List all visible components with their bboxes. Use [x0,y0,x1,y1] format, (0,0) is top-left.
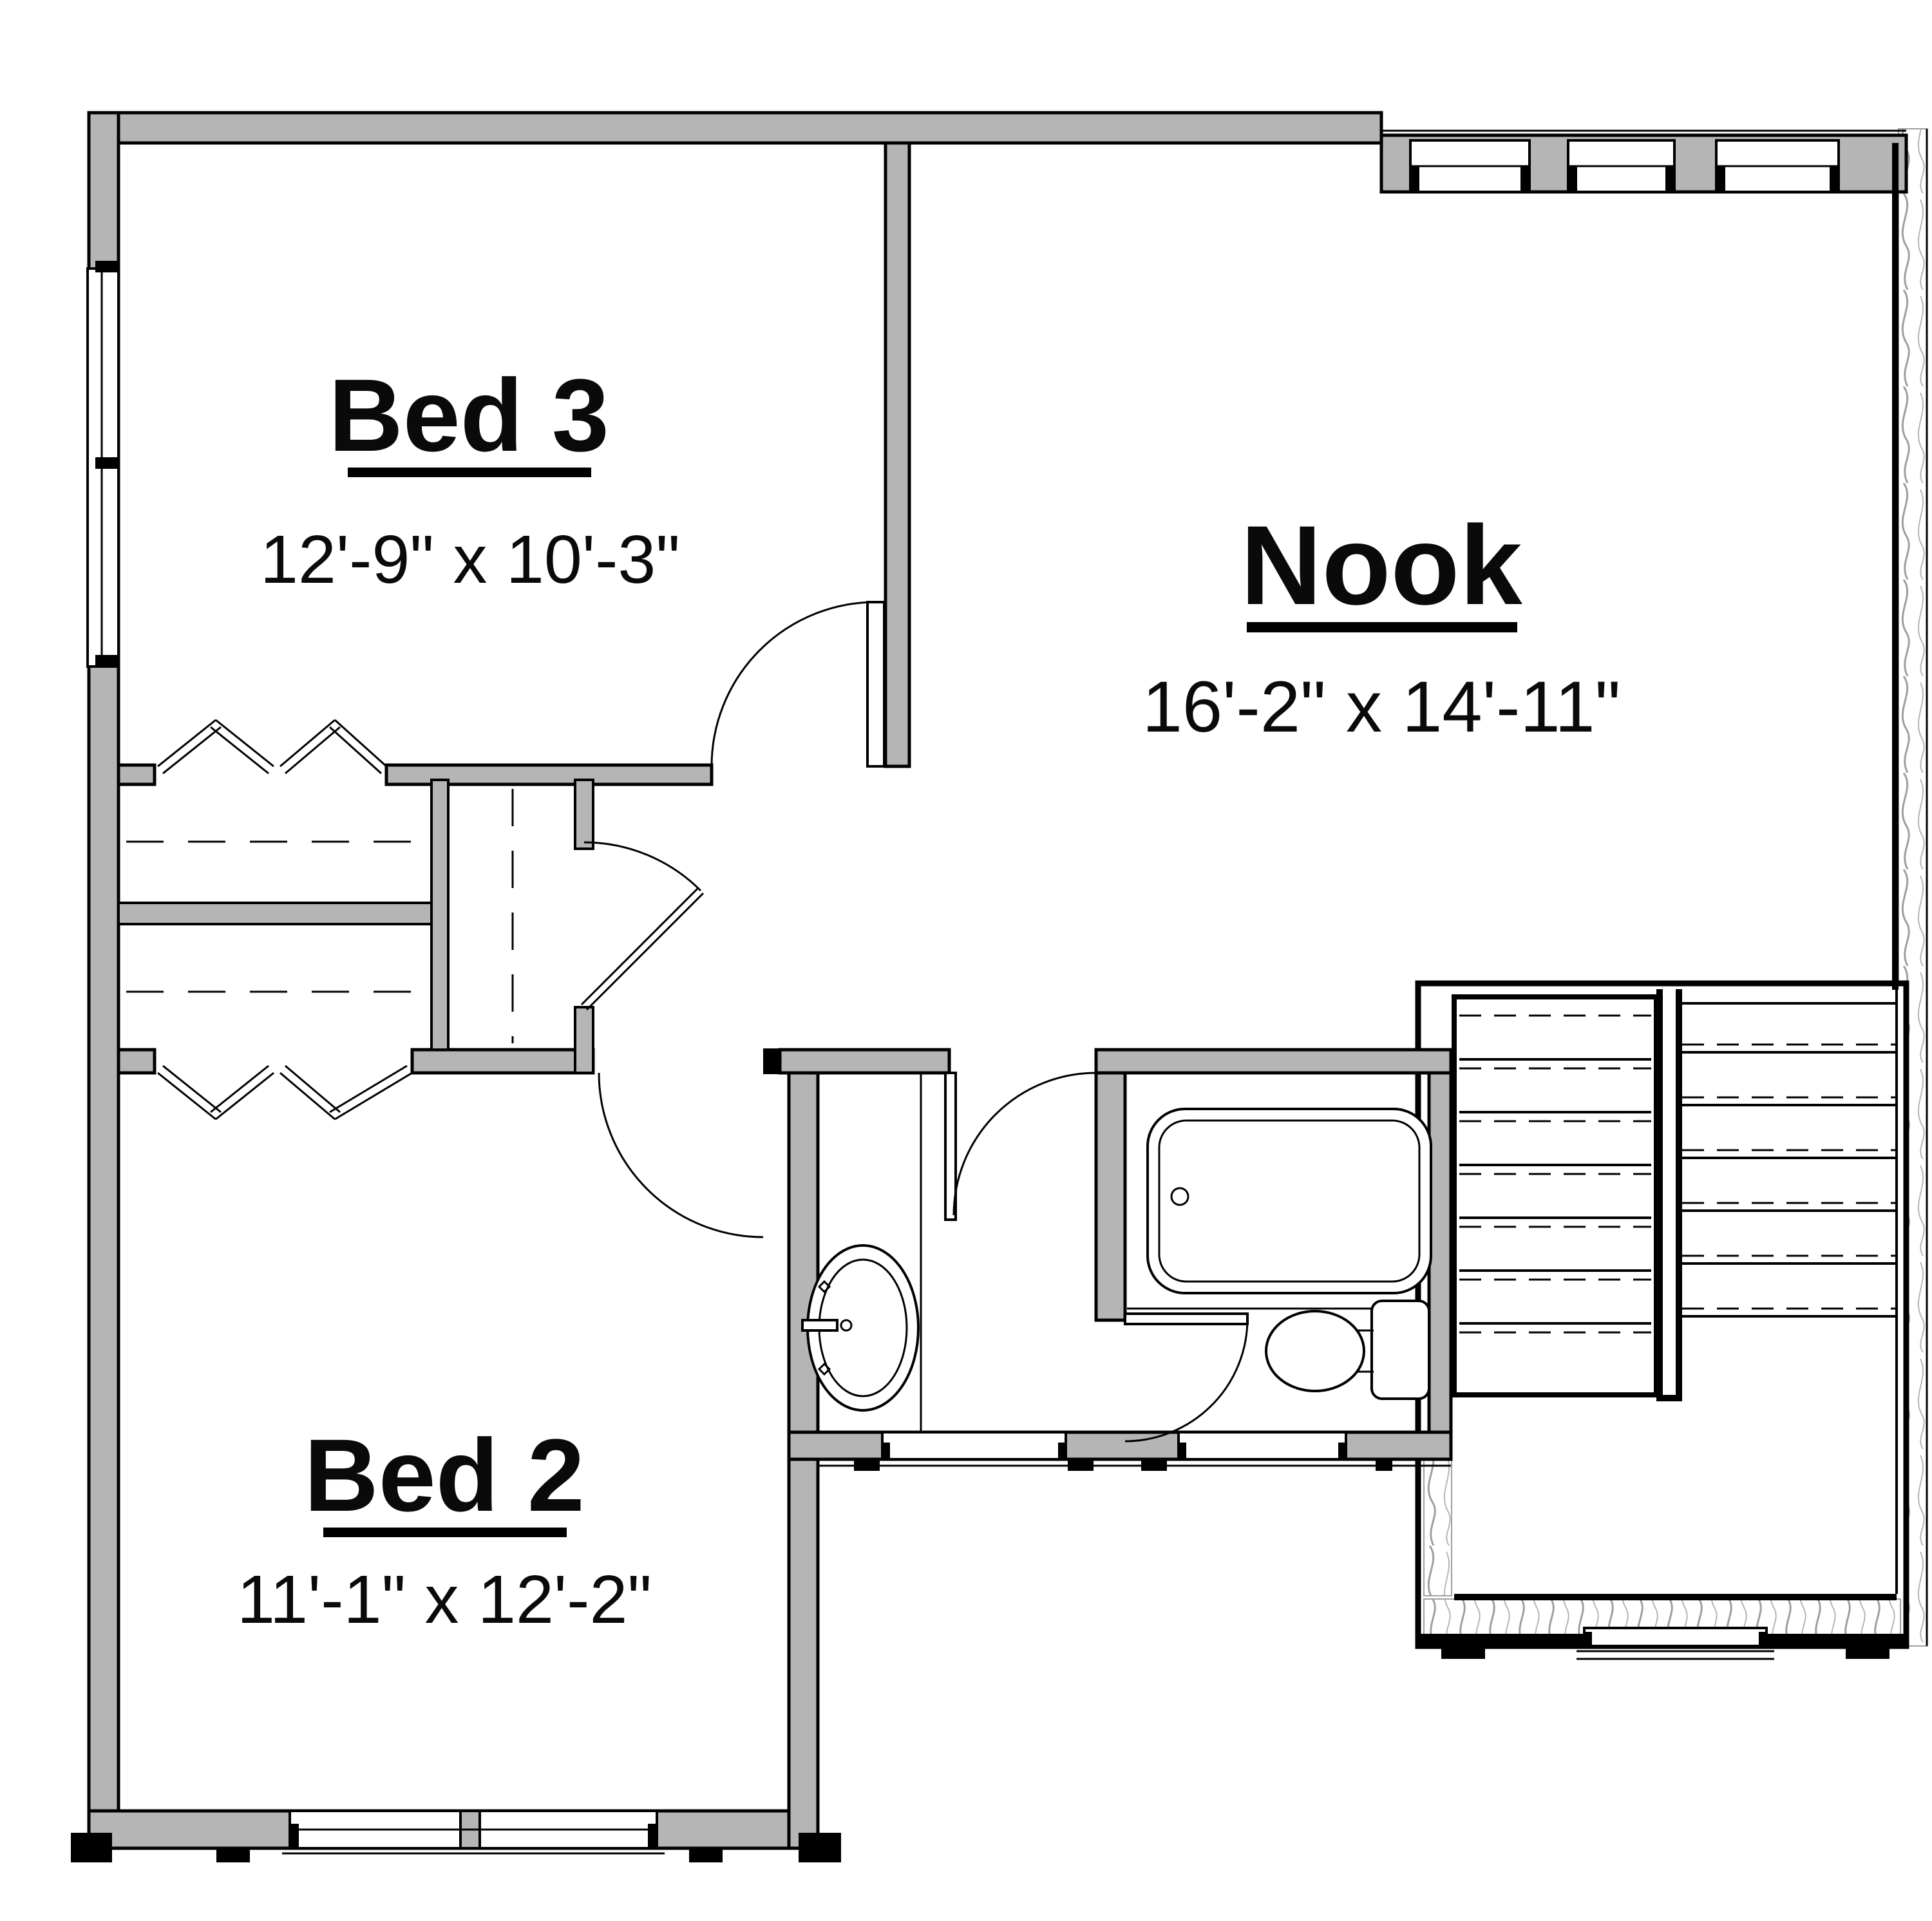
bath-top-wall [780,1050,949,1073]
window [1577,1628,1774,1659]
toilet-room-door [1125,1314,1247,1441]
bed2-label: Bed 2 [304,1417,585,1533]
nook-label: Nook [1240,503,1522,629]
bed3-underline [348,468,591,477]
nook-underline [1247,622,1517,632]
bed3-label: Bed 3 [328,357,609,473]
bath-top-wall [1096,1050,1451,1073]
linen-door [582,842,703,1010]
toilet [1266,1301,1429,1399]
stair-left-flight-enclosure [1454,997,1656,1395]
top-exterior-wall [89,113,1381,143]
stair-landing-edge [1454,1594,1897,1600]
window [1568,140,1674,192]
hall-wall [118,1050,155,1073]
window [1716,140,1839,192]
linen-wall-stub [575,780,593,849]
bed2-underline [323,1528,567,1537]
window [1410,140,1529,192]
bifold-doors-top-closet [158,720,386,773]
linen-wall-stub [575,1007,593,1073]
open-below-hatch-left [1424,1459,1452,1596]
bifold-doors-bottom-closet [158,1066,412,1119]
bed3-door [712,602,884,766]
window [1179,1432,1346,1459]
door-jamb [763,1048,780,1074]
sink-vanity [802,1073,921,1432]
bathtub [1127,1109,1431,1309]
bed3-dimensions: 12'-9" x 10'-3" [260,522,680,598]
bath-sink-door [945,1073,1096,1220]
toilet-tank [1372,1301,1429,1399]
bed3-bottom-wall [118,765,155,784]
bed3-nook-divider-wall [885,143,909,766]
bed2-dimensions: 11'-1" x 12'-2" [237,1562,652,1638]
toilet-bowl [1266,1311,1364,1391]
nook-right-wall [1892,143,1899,990]
sink-faucet [802,1320,837,1330]
floor-plan: Bed 3 12'-9" x 10'-3" Nook 16'-2" x 14'-… [0,0,1932,1921]
window [882,1432,1066,1459]
closet-divider-wall [118,903,447,924]
window [88,261,118,667]
closet-right-wall [431,780,448,1050]
bath-stair-wall [1429,1073,1451,1436]
floor-plan-drawing: Bed 3 12'-9" x 10'-3" Nook 16'-2" x 14'-… [0,0,1932,1921]
bath-divider-wall [1096,1073,1125,1320]
nook-dimensions: 16'-2" x 14'-11" [1142,667,1621,747]
hall-wall [412,1050,593,1073]
bed2-door [599,1073,763,1237]
